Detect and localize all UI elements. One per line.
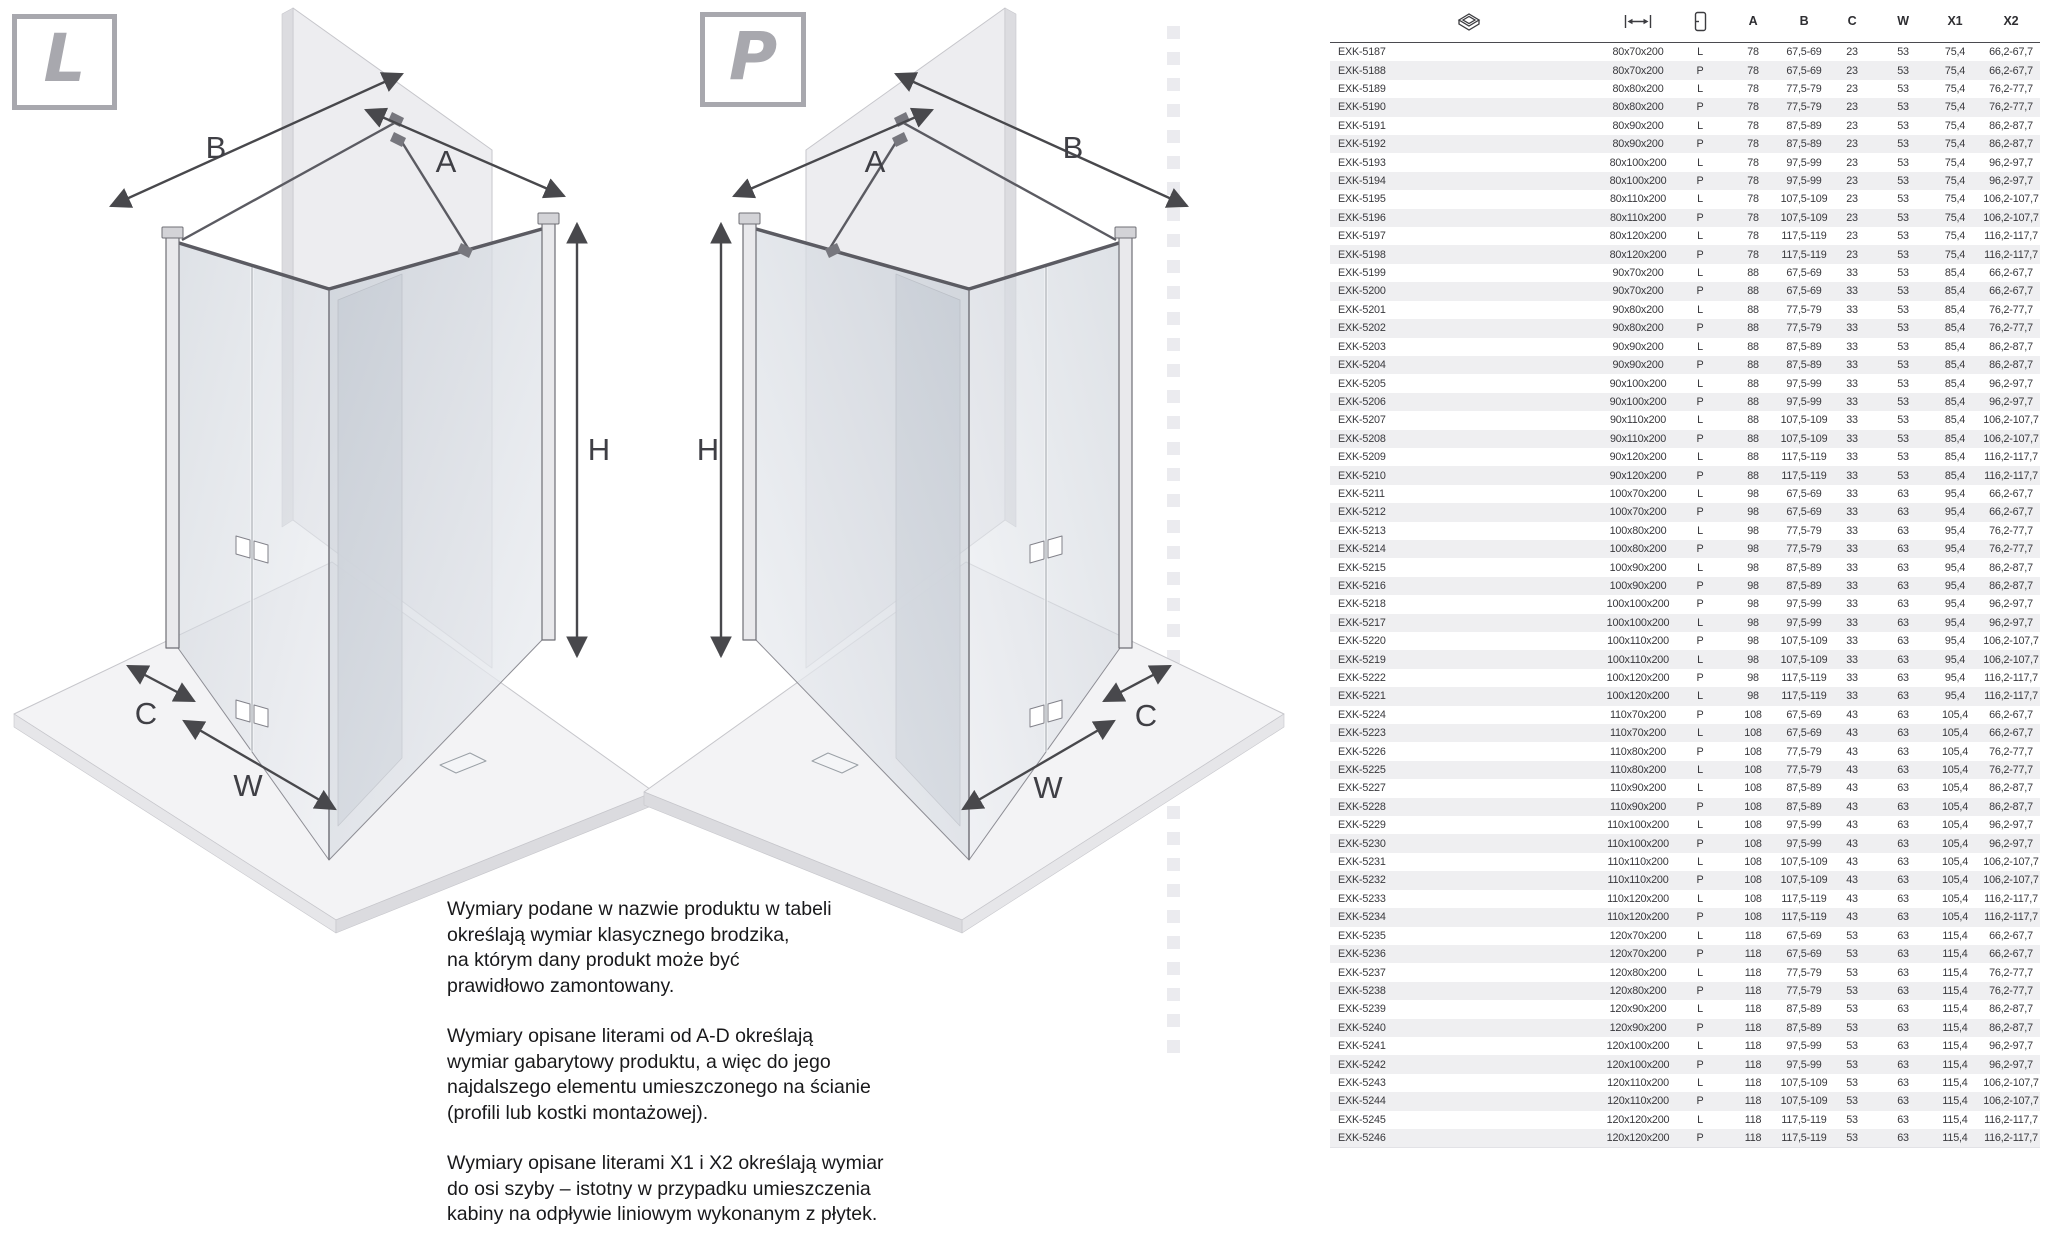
dim-c-cell: 33 xyxy=(1826,267,1878,279)
dim-b-cell: 97,5-99 xyxy=(1782,378,1826,390)
table-row: EXK-5212 100x70x200 P 98 67,5-69 33 63 9… xyxy=(1330,503,2040,521)
dim-b-cell: 117,5-119 xyxy=(1782,893,1826,905)
dim-w-cell: 63 xyxy=(1878,672,1928,684)
table-row: EXK-5239 120x90x200 L 118 87,5-89 53 63 … xyxy=(1330,1000,2040,1018)
dim-x1-cell: 85,4 xyxy=(1928,322,1982,334)
dim-x1-cell: 75,4 xyxy=(1928,249,1982,261)
dim-x2-cell: 76,2-77,7 xyxy=(1982,967,2040,979)
note-paragraph-1: Wymiary podane w nazwie produktu w tabel… xyxy=(447,897,952,999)
dim-w-cell: 53 xyxy=(1878,433,1928,445)
side-cell: L xyxy=(1676,617,1724,629)
dim-x2-cell: 66,2-67,7 xyxy=(1982,65,2040,77)
side-cell: P xyxy=(1676,285,1724,297)
dim-x1-cell: 115,4 xyxy=(1928,948,1982,960)
dim-a-cell: 118 xyxy=(1724,1040,1782,1052)
product-code-cell: EXK-5223 xyxy=(1330,727,1600,739)
dim-x2-cell: 96,2-97,7 xyxy=(1982,617,2040,629)
table-row: EXK-5191 80x90x200 L 78 87,5-89 23 53 75… xyxy=(1330,117,2040,135)
side-cell: L xyxy=(1676,856,1724,868)
dim-b-cell: 107,5-109 xyxy=(1782,1077,1826,1089)
dim-a-cell: 118 xyxy=(1724,1059,1782,1071)
table-row: EXK-5188 80x70x200 P 78 67,5-69 23 53 75… xyxy=(1330,61,2040,79)
dim-x1-cell: 115,4 xyxy=(1928,1132,1982,1144)
dim-a-cell: 98 xyxy=(1724,543,1782,555)
dim-c-cell: 33 xyxy=(1826,341,1878,353)
dim-c-cell: 23 xyxy=(1826,65,1878,77)
dim-c-cell: 33 xyxy=(1826,654,1878,666)
dim-a-cell: 118 xyxy=(1724,1114,1782,1126)
dim-a-cell: 88 xyxy=(1724,433,1782,445)
dim-w-cell: 53 xyxy=(1878,157,1928,169)
dim-x2-cell: 96,2-97,7 xyxy=(1982,819,2040,831)
size-cell: 80x120x200 xyxy=(1600,249,1676,261)
dim-c-cell: 53 xyxy=(1826,967,1878,979)
side-cell: P xyxy=(1676,433,1724,445)
dim-c-cell: 43 xyxy=(1826,874,1878,886)
dim-a-cell: 78 xyxy=(1724,120,1782,132)
dim-b-cell: 97,5-99 xyxy=(1782,1059,1826,1071)
dim-b-cell: 97,5-99 xyxy=(1782,1040,1826,1052)
dim-b-cell: 107,5-109 xyxy=(1782,654,1826,666)
dim-x2-cell: 86,2-87,7 xyxy=(1982,782,2040,794)
dim-b-cell: 87,5-89 xyxy=(1782,341,1826,353)
dim-x2-cell: 116,2-117,7 xyxy=(1982,230,2040,242)
side-cell: L xyxy=(1676,690,1724,702)
door-orientation-icon xyxy=(1693,11,1708,32)
dim-c-cell: 33 xyxy=(1826,396,1878,408)
product-code-cell: EXK-5192 xyxy=(1330,138,1600,150)
dim-w-cell: 53 xyxy=(1878,470,1928,482)
table-row: EXK-5243 120x110x200 L 118 107,5-109 53 … xyxy=(1330,1074,2040,1092)
dim-a-cell: 118 xyxy=(1724,985,1782,997)
table-row: EXK-5211 100x70x200 L 98 67,5-69 33 63 9… xyxy=(1330,485,2040,503)
table-row: EXK-5210 90x120x200 P 88 117,5-119 33 53… xyxy=(1330,466,2040,484)
dim-x2-cell: 116,2-117,7 xyxy=(1982,470,2040,482)
product-code-cell: EXK-5200 xyxy=(1330,285,1600,297)
dim-c-cell: 43 xyxy=(1826,782,1878,794)
dim-a-cell: 118 xyxy=(1724,1077,1782,1089)
dim-x2-cell: 76,2-77,7 xyxy=(1982,101,2040,113)
dim-a-cell: 98 xyxy=(1724,580,1782,592)
dim-x2-cell: 116,2-117,7 xyxy=(1982,911,2040,923)
dim-x2-cell: 76,2-77,7 xyxy=(1982,543,2040,555)
products-dimensions-table: A B C W X1 X2 EXK-5187 80x70x200 L 78 67… xyxy=(1330,0,2040,1148)
dim-x2-cell: 66,2-67,7 xyxy=(1982,506,2040,518)
dim-x1-cell: 105,4 xyxy=(1928,764,1982,776)
dim-a-cell: 98 xyxy=(1724,635,1782,647)
dim-x1-cell: 115,4 xyxy=(1928,1040,1982,1052)
dim-c-cell: 23 xyxy=(1826,46,1878,58)
side-cell: P xyxy=(1676,101,1724,113)
dim-a-cell: 108 xyxy=(1724,709,1782,721)
product-code-cell: EXK-5203 xyxy=(1330,341,1600,353)
product-code-cell: EXK-5196 xyxy=(1330,212,1600,224)
diagram-right-variant xyxy=(644,8,1284,933)
side-cell: L xyxy=(1676,819,1724,831)
product-code-cell: EXK-5219 xyxy=(1330,654,1600,666)
size-cell: 90x80x200 xyxy=(1600,322,1676,334)
dim-x2-cell: 76,2-77,7 xyxy=(1982,746,2040,758)
dim-w-cell: 53 xyxy=(1878,322,1928,334)
dim-x2-cell: 96,2-97,7 xyxy=(1982,838,2040,850)
table-row: EXK-5187 80x70x200 L 78 67,5-69 23 53 75… xyxy=(1330,43,2040,61)
table-row: EXK-5233 110x120x200 L 108 117,5-119 43 … xyxy=(1330,890,2040,908)
dim-w-cell: 63 xyxy=(1878,856,1928,868)
dim-x2-cell: 106,2-107,7 xyxy=(1982,635,2040,647)
dim-x1-cell: 115,4 xyxy=(1928,930,1982,942)
dim-w-cell: 53 xyxy=(1878,378,1928,390)
product-code-cell: EXK-5243 xyxy=(1330,1077,1600,1089)
size-cell: 110x80x200 xyxy=(1600,764,1676,776)
dim-c-cell: 53 xyxy=(1826,1040,1878,1052)
product-code-cell: EXK-5225 xyxy=(1330,764,1600,776)
table-row: EXK-5194 80x100x200 P 78 97,5-99 23 53 7… xyxy=(1330,172,2040,190)
size-cell: 110x110x200 xyxy=(1600,874,1676,886)
side-cell: L xyxy=(1676,1003,1724,1015)
side-cell: L xyxy=(1676,193,1724,205)
dim-a-cell: 108 xyxy=(1724,874,1782,886)
dim-x1-cell: 85,4 xyxy=(1928,341,1982,353)
dim-x1-cell: 105,4 xyxy=(1928,801,1982,813)
dim-x2-cell: 76,2-77,7 xyxy=(1982,83,2040,95)
dim-label-h-left: H xyxy=(588,432,610,467)
size-cell: 120x120x200 xyxy=(1600,1114,1676,1126)
dim-b-cell: 87,5-89 xyxy=(1782,359,1826,371)
side-cell: P xyxy=(1676,985,1724,997)
table-row: EXK-5197 80x120x200 L 78 117,5-119 23 53… xyxy=(1330,227,2040,245)
side-header xyxy=(1676,11,1724,32)
dim-x2-cell: 76,2-77,7 xyxy=(1982,985,2040,997)
dim-w-cell: 63 xyxy=(1878,543,1928,555)
dim-c-cell: 33 xyxy=(1826,562,1878,574)
product-code-cell: EXK-5235 xyxy=(1330,930,1600,942)
product-code-cell: EXK-5221 xyxy=(1330,690,1600,702)
dim-w-cell: 63 xyxy=(1878,874,1928,886)
dim-c-cell: 33 xyxy=(1826,543,1878,555)
product-code-cell: EXK-5215 xyxy=(1330,562,1600,574)
dim-x1-cell: 95,4 xyxy=(1928,654,1982,666)
size-cell: 100x70x200 xyxy=(1600,488,1676,500)
size-cell: 80x90x200 xyxy=(1600,138,1676,150)
dim-x1-cell: 85,4 xyxy=(1928,470,1982,482)
dim-c-cell: 33 xyxy=(1826,451,1878,463)
dim-x2-cell: 66,2-67,7 xyxy=(1982,488,2040,500)
dim-a-cell: 98 xyxy=(1724,617,1782,629)
table-row: EXK-5209 90x120x200 L 88 117,5-119 33 53… xyxy=(1330,448,2040,466)
dim-w-cell: 63 xyxy=(1878,819,1928,831)
right-variant-badge: P xyxy=(700,12,806,107)
dim-c-cell: 33 xyxy=(1826,635,1878,647)
dim-b-cell: 67,5-69 xyxy=(1782,506,1826,518)
side-cell: P xyxy=(1676,1095,1724,1107)
product-code-cell: EXK-5210 xyxy=(1330,470,1600,482)
dim-label-c-left: C xyxy=(135,696,157,731)
table-row: EXK-5234 110x120x200 P 108 117,5-119 43 … xyxy=(1330,908,2040,926)
dim-c-cell: 53 xyxy=(1826,1114,1878,1126)
size-cell: 80x90x200 xyxy=(1600,120,1676,132)
side-cell: P xyxy=(1676,249,1724,261)
dim-b-cell: 87,5-89 xyxy=(1782,782,1826,794)
product-code-cell: EXK-5224 xyxy=(1330,709,1600,721)
dim-label-h-right: H xyxy=(697,432,719,467)
dim-b-cell: 97,5-99 xyxy=(1782,396,1826,408)
dim-a-cell: 98 xyxy=(1724,506,1782,518)
size-cell: 100x110x200 xyxy=(1600,654,1676,666)
dim-x2-cell: 76,2-77,7 xyxy=(1982,304,2040,316)
dim-b-cell: 87,5-89 xyxy=(1782,138,1826,150)
dim-c-cell: 53 xyxy=(1826,930,1878,942)
dim-w-cell: 63 xyxy=(1878,598,1928,610)
dim-c-cell: 33 xyxy=(1826,359,1878,371)
dim-b-cell: 107,5-109 xyxy=(1782,193,1826,205)
side-cell: P xyxy=(1676,396,1724,408)
dim-x1-cell: 115,4 xyxy=(1928,1095,1982,1107)
size-cell: 80x100x200 xyxy=(1600,175,1676,187)
size-cell: 120x90x200 xyxy=(1600,1022,1676,1034)
dim-w-cell: 63 xyxy=(1878,1059,1928,1071)
dim-c-cell: 33 xyxy=(1826,506,1878,518)
table-row: EXK-5238 120x80x200 P 118 77,5-79 53 63 … xyxy=(1330,982,2040,1000)
dim-c-cell: 23 xyxy=(1826,212,1878,224)
product-code-cell: EXK-5209 xyxy=(1330,451,1600,463)
dim-b-cell: 67,5-69 xyxy=(1782,285,1826,297)
size-cell: 120x70x200 xyxy=(1600,948,1676,960)
product-code-cell: EXK-5238 xyxy=(1330,985,1600,997)
dim-b-cell: 107,5-109 xyxy=(1782,874,1826,886)
size-cell: 120x90x200 xyxy=(1600,1003,1676,1015)
size-cell: 110x100x200 xyxy=(1600,838,1676,850)
dim-c-cell: 33 xyxy=(1826,414,1878,426)
dim-c-cell: 33 xyxy=(1826,598,1878,610)
product-code-cell: EXK-5204 xyxy=(1330,359,1600,371)
dim-c-cell: 43 xyxy=(1826,911,1878,923)
dim-w-cell: 63 xyxy=(1878,1003,1928,1015)
dim-x2-cell: 66,2-67,7 xyxy=(1982,267,2040,279)
table-row: EXK-5230 110x100x200 P 108 97,5-99 43 63… xyxy=(1330,834,2040,852)
dim-c-cell: 33 xyxy=(1826,672,1878,684)
dim-b-cell: 67,5-69 xyxy=(1782,948,1826,960)
dim-c-cell: 53 xyxy=(1826,1095,1878,1107)
column-header-c: C xyxy=(1826,14,1878,28)
dim-x1-cell: 105,4 xyxy=(1928,746,1982,758)
dim-x1-cell: 75,4 xyxy=(1928,120,1982,132)
table-row: EXK-5229 110x100x200 L 108 97,5-99 43 63… xyxy=(1330,816,2040,834)
table-row: EXK-5246 120x120x200 P 118 117,5-119 53 … xyxy=(1330,1129,2040,1147)
size-cell: 100x80x200 xyxy=(1600,525,1676,537)
table-body: EXK-5187 80x70x200 L 78 67,5-69 23 53 75… xyxy=(1330,43,2040,1148)
dim-b-cell: 77,5-79 xyxy=(1782,746,1826,758)
dim-a-cell: 98 xyxy=(1724,690,1782,702)
dim-b-cell: 117,5-119 xyxy=(1782,1114,1826,1126)
dim-x2-cell: 86,2-87,7 xyxy=(1982,138,2040,150)
size-cell: 90x70x200 xyxy=(1600,285,1676,297)
product-code-cell: EXK-5191 xyxy=(1330,120,1600,132)
dim-w-cell: 53 xyxy=(1878,267,1928,279)
dim-x2-cell: 96,2-97,7 xyxy=(1982,598,2040,610)
side-cell: P xyxy=(1676,948,1724,960)
dim-a-cell: 118 xyxy=(1724,930,1782,942)
product-code-cell: EXK-5227 xyxy=(1330,782,1600,794)
dim-x1-cell: 95,4 xyxy=(1928,690,1982,702)
dim-w-cell: 63 xyxy=(1878,911,1928,923)
dim-x1-cell: 95,4 xyxy=(1928,635,1982,647)
dim-a-cell: 98 xyxy=(1724,562,1782,574)
dim-x1-cell: 75,4 xyxy=(1928,193,1982,205)
table-row: EXK-5225 110x80x200 L 108 77,5-79 43 63 … xyxy=(1330,761,2040,779)
dim-c-cell: 23 xyxy=(1826,193,1878,205)
dim-b-cell: 107,5-109 xyxy=(1782,1095,1826,1107)
dim-b-cell: 97,5-99 xyxy=(1782,819,1826,831)
dim-x1-cell: 115,4 xyxy=(1928,1114,1982,1126)
dim-x2-cell: 76,2-77,7 xyxy=(1982,764,2040,776)
product-code-cell: EXK-5228 xyxy=(1330,801,1600,813)
product-code-cell: EXK-5242 xyxy=(1330,1059,1600,1071)
table-row: EXK-5221 100x120x200 L 98 117,5-119 33 6… xyxy=(1330,687,2040,705)
size-cell: 100x70x200 xyxy=(1600,506,1676,518)
dim-x2-cell: 116,2-117,7 xyxy=(1982,1114,2040,1126)
size-cell: 110x120x200 xyxy=(1600,893,1676,905)
size-cell: 110x70x200 xyxy=(1600,727,1676,739)
size-cell: 90x80x200 xyxy=(1600,304,1676,316)
table-row: EXK-5207 90x110x200 L 88 107,5-109 33 53… xyxy=(1330,411,2040,429)
dim-a-cell: 88 xyxy=(1724,341,1782,353)
product-code-cell: EXK-5205 xyxy=(1330,378,1600,390)
dim-x2-cell: 86,2-87,7 xyxy=(1982,1022,2040,1034)
dim-a-cell: 108 xyxy=(1724,838,1782,850)
size-cell: 120x80x200 xyxy=(1600,985,1676,997)
dim-x2-cell: 96,2-97,7 xyxy=(1982,1059,2040,1071)
table-row: EXK-5200 90x70x200 P 88 67,5-69 33 53 85… xyxy=(1330,282,2040,300)
size-cell: 110x100x200 xyxy=(1600,819,1676,831)
size-cell: 100x100x200 xyxy=(1600,617,1676,629)
dim-x2-cell: 86,2-87,7 xyxy=(1982,120,2040,132)
side-cell: P xyxy=(1676,838,1724,850)
spec-sheet-page: B A H C W A B H C W L P Wymiary podane w… xyxy=(0,0,2048,1250)
dim-w-cell: 63 xyxy=(1878,1132,1928,1144)
side-cell: L xyxy=(1676,414,1724,426)
dim-b-cell: 67,5-69 xyxy=(1782,709,1826,721)
left-variant-badge: L xyxy=(12,14,117,110)
dim-w-cell: 63 xyxy=(1878,617,1928,629)
dim-w-cell: 63 xyxy=(1878,488,1928,500)
side-cell: L xyxy=(1676,727,1724,739)
table-row: EXK-5244 120x110x200 P 118 107,5-109 53 … xyxy=(1330,1092,2040,1110)
dim-b-cell: 77,5-79 xyxy=(1782,304,1826,316)
dim-b-cell: 87,5-89 xyxy=(1782,1022,1826,1034)
dim-w-cell: 63 xyxy=(1878,746,1928,758)
dim-c-cell: 33 xyxy=(1826,285,1878,297)
side-cell: L xyxy=(1676,230,1724,242)
side-cell: P xyxy=(1676,635,1724,647)
table-row: EXK-5245 120x120x200 L 118 117,5-119 53 … xyxy=(1330,1111,2040,1129)
dim-x1-cell: 85,4 xyxy=(1928,267,1982,279)
product-code-cell: EXK-5241 xyxy=(1330,1040,1600,1052)
side-cell: L xyxy=(1676,46,1724,58)
side-cell: L xyxy=(1676,1114,1724,1126)
dimension-notes: Wymiary podane w nazwie produktu w tabel… xyxy=(447,897,952,1250)
table-row: EXK-5199 90x70x200 L 88 67,5-69 33 53 85… xyxy=(1330,264,2040,282)
dim-x1-cell: 95,4 xyxy=(1928,488,1982,500)
table-row: EXK-5215 100x90x200 L 98 87,5-89 33 63 9… xyxy=(1330,558,2040,576)
dim-a-cell: 118 xyxy=(1724,1132,1782,1144)
dim-c-cell: 43 xyxy=(1826,746,1878,758)
size-cell: 100x80x200 xyxy=(1600,543,1676,555)
dim-a-cell: 108 xyxy=(1724,764,1782,776)
size-cell: 80x120x200 xyxy=(1600,230,1676,242)
side-cell: P xyxy=(1676,138,1724,150)
dim-w-cell: 63 xyxy=(1878,782,1928,794)
product-code-cell: EXK-5202 xyxy=(1330,322,1600,334)
size-cell: 90x100x200 xyxy=(1600,396,1676,408)
size-cell: 120x70x200 xyxy=(1600,930,1676,942)
dim-x1-cell: 85,4 xyxy=(1928,451,1982,463)
dim-a-cell: 108 xyxy=(1724,727,1782,739)
dim-a-cell: 88 xyxy=(1724,322,1782,334)
dim-w-cell: 63 xyxy=(1878,654,1928,666)
dim-b-cell: 117,5-119 xyxy=(1782,230,1826,242)
dim-b-cell: 87,5-89 xyxy=(1782,801,1826,813)
dim-a-cell: 88 xyxy=(1724,451,1782,463)
dim-b-cell: 67,5-69 xyxy=(1782,488,1826,500)
product-code-cell: EXK-5222 xyxy=(1330,672,1600,684)
dim-a-cell: 108 xyxy=(1724,856,1782,868)
dim-c-cell: 23 xyxy=(1826,138,1878,150)
dim-a-cell: 108 xyxy=(1724,782,1782,794)
column-header-w: W xyxy=(1878,14,1928,28)
dim-c-cell: 53 xyxy=(1826,948,1878,960)
table-row: EXK-5222 100x120x200 P 98 117,5-119 33 6… xyxy=(1330,669,2040,687)
table-row: EXK-5231 110x110x200 L 108 107,5-109 43 … xyxy=(1330,853,2040,871)
size-cell: 90x90x200 xyxy=(1600,359,1676,371)
table-row: EXK-5240 120x90x200 P 118 87,5-89 53 63 … xyxy=(1330,1019,2040,1037)
size-cell: 80x80x200 xyxy=(1600,101,1676,113)
table-row: EXK-5213 100x80x200 L 98 77,5-79 33 63 9… xyxy=(1330,522,2040,540)
size-cell: 110x70x200 xyxy=(1600,709,1676,721)
dim-w-cell: 63 xyxy=(1878,1022,1928,1034)
size-cell: 100x120x200 xyxy=(1600,690,1676,702)
dim-c-cell: 33 xyxy=(1826,470,1878,482)
dim-x1-cell: 105,4 xyxy=(1928,819,1982,831)
product-code-cell: EXK-5188 xyxy=(1330,65,1600,77)
dim-c-cell: 33 xyxy=(1826,488,1878,500)
dim-a-cell: 78 xyxy=(1724,249,1782,261)
dim-a-cell: 108 xyxy=(1724,801,1782,813)
product-code-cell: EXK-5232 xyxy=(1330,874,1600,886)
dim-x2-cell: 116,2-117,7 xyxy=(1982,249,2040,261)
dim-b-cell: 97,5-99 xyxy=(1782,157,1826,169)
dim-b-cell: 117,5-119 xyxy=(1782,451,1826,463)
dim-b-cell: 117,5-119 xyxy=(1782,470,1826,482)
dim-x1-cell: 95,4 xyxy=(1928,543,1982,555)
dim-a-cell: 88 xyxy=(1724,285,1782,297)
product-code-cell: EXK-5190 xyxy=(1330,101,1600,113)
dim-x1-cell: 115,4 xyxy=(1928,1022,1982,1034)
width-dimension-icon xyxy=(1624,14,1652,29)
product-code-cell: EXK-5214 xyxy=(1330,543,1600,555)
dim-c-cell: 23 xyxy=(1826,175,1878,187)
product-code-cell: EXK-5211 xyxy=(1330,488,1600,500)
dim-b-cell: 117,5-119 xyxy=(1782,672,1826,684)
table-row: EXK-5219 100x110x200 L 98 107,5-109 33 6… xyxy=(1330,650,2040,668)
table-row: EXK-5195 80x110x200 L 78 107,5-109 23 53… xyxy=(1330,190,2040,208)
dim-x2-cell: 86,2-87,7 xyxy=(1982,580,2040,592)
side-cell: L xyxy=(1676,267,1724,279)
table-row: EXK-5202 90x80x200 P 88 77,5-79 33 53 85… xyxy=(1330,319,2040,337)
product-code-cell: EXK-5218 xyxy=(1330,598,1600,610)
dim-b-cell: 87,5-89 xyxy=(1782,562,1826,574)
dim-w-cell: 53 xyxy=(1878,359,1928,371)
side-cell: P xyxy=(1676,580,1724,592)
